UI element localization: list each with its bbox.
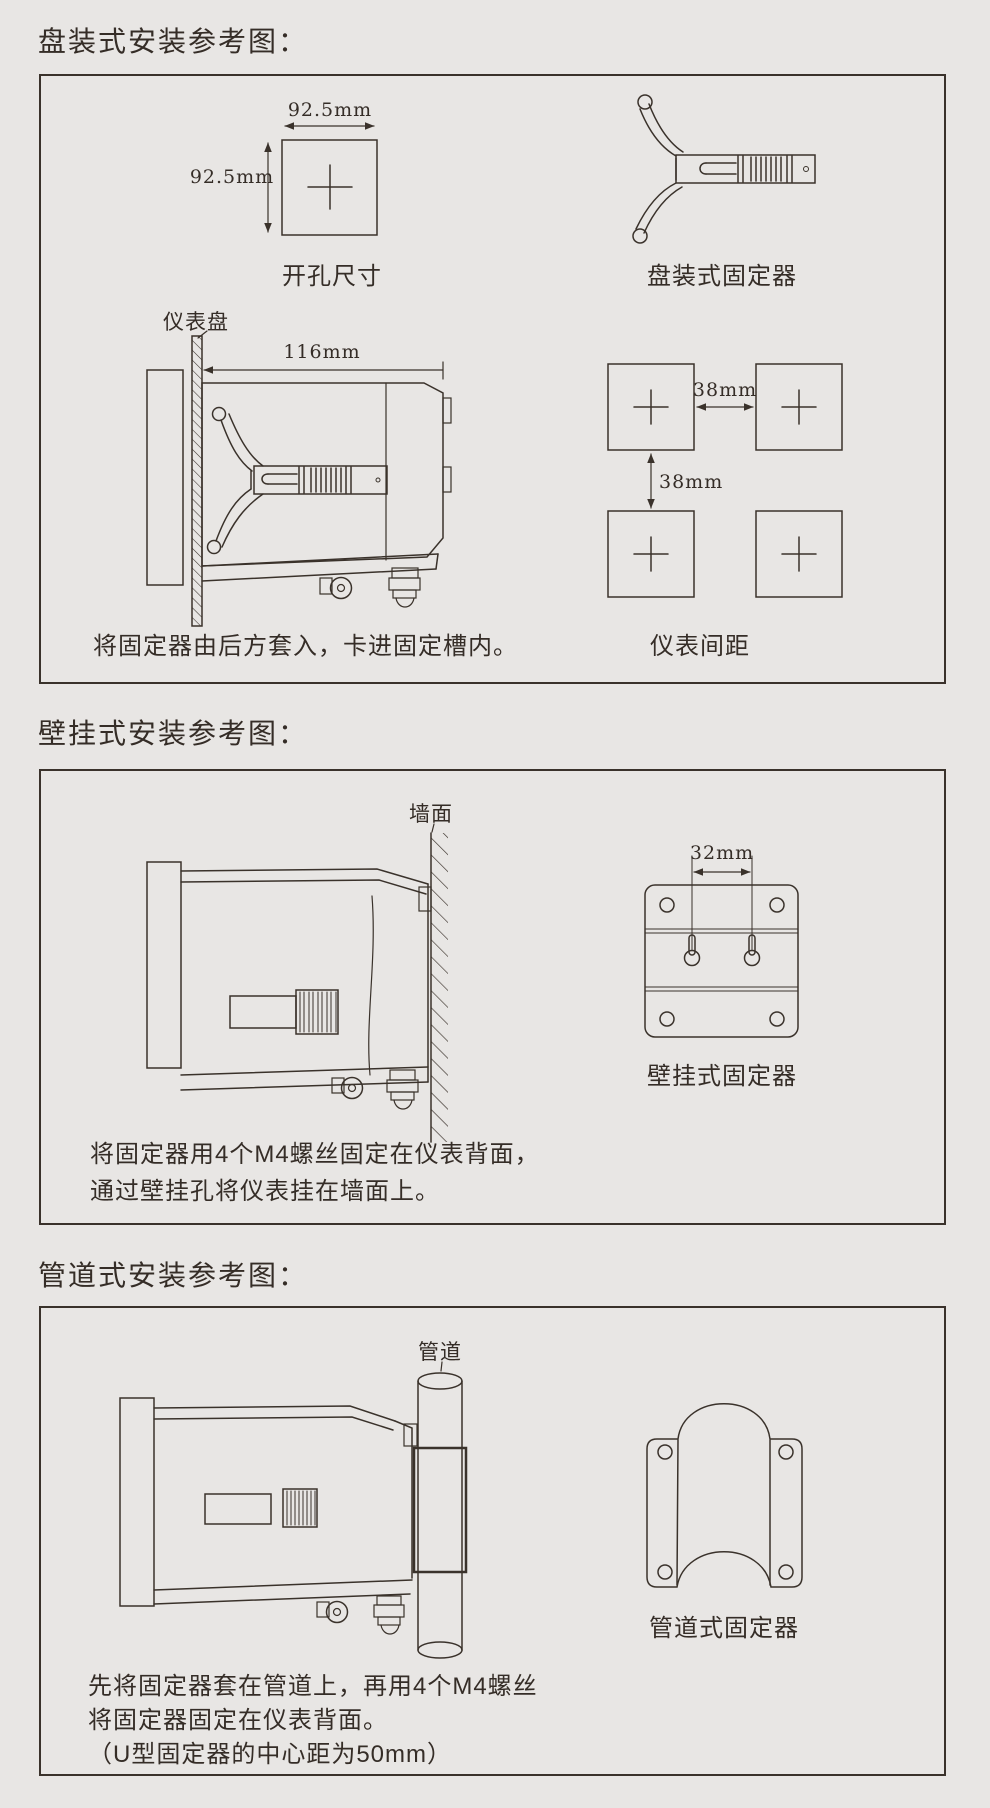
- panel-mount-side-view: [147, 331, 451, 626]
- pipe-bracket: [414, 1448, 466, 1572]
- wall-instruction-line1: 将固定器用4个M4螺丝固定在仪表背面，: [90, 1134, 540, 1169]
- instrument-body: [202, 383, 443, 566]
- pipe-fixer-drawing: [647, 1404, 802, 1587]
- wall-section-title: 壁挂式安装参考图：: [38, 712, 308, 752]
- wall-plate: [645, 885, 798, 1037]
- pipe-instruction-line1: 先将固定器套在管道上，再用4个M4螺丝: [88, 1666, 538, 1701]
- pipe-label: 管道: [395, 1336, 485, 1366]
- panel-fixer-caption: 盘装式固定器: [597, 256, 847, 291]
- cable-line: [369, 896, 373, 1075]
- depth-dimension-label: 116mm: [272, 341, 372, 363]
- pipe-section-title: 管道式安装参考图：: [38, 1254, 308, 1294]
- wall-hatching: [431, 833, 448, 1142]
- pipe-instruction-line2: 将固定器固定在仪表背面。: [88, 1700, 388, 1735]
- panel-cross-section: [192, 336, 202, 626]
- pipe-instruction-line3: （U型固定器的中心距为50mm）: [88, 1734, 452, 1769]
- v-spacing-label: 38mm: [659, 471, 723, 493]
- h-spacing-label: 38mm: [690, 379, 760, 401]
- wall-fixer-drawing: [645, 856, 798, 1037]
- installation-manual-page: 盘装式安装参考图： 92.5mm 92.5mm 开孔尺寸 盘装式固定器 仪表盘 …: [0, 0, 990, 1808]
- panel-section-title: 盘装式安装参考图：: [38, 20, 308, 60]
- wall-label: 墙面: [381, 798, 481, 828]
- panel-fixer-drawing: [633, 95, 815, 243]
- panel-instruction: 将固定器由后方套入，卡进固定槽内。: [93, 626, 518, 661]
- panel-label: 仪表盘: [141, 306, 251, 336]
- cutout-height-label: 92.5mm: [172, 166, 292, 188]
- wall-instruction-line2: 通过壁挂孔将仪表挂在墙面上。: [90, 1171, 440, 1206]
- instrument-bezel: [120, 1398, 154, 1606]
- spacing-caption: 仪表间距: [600, 626, 800, 661]
- pipe-fixer-caption: 管道式固定器: [594, 1608, 854, 1643]
- hole-spacing-label: 32mm: [672, 842, 772, 864]
- cutout-caption: 开孔尺寸: [252, 256, 412, 291]
- cutout-width-label: 92.5mm: [270, 99, 390, 121]
- instrument-bezel: [147, 370, 183, 585]
- wall-mount-side-view: [147, 824, 448, 1142]
- wall-fixer-caption: 壁挂式固定器: [597, 1056, 847, 1091]
- pipe-mount-side-view: [120, 1362, 466, 1658]
- instrument-bezel: [147, 862, 181, 1068]
